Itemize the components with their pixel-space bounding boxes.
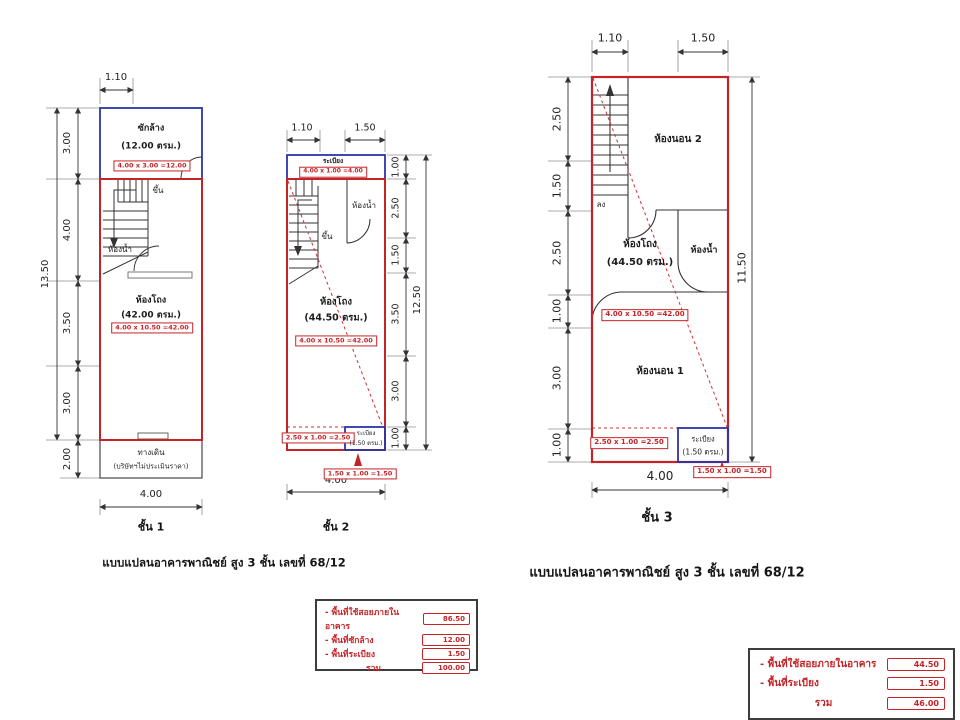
summary-row-label: - พื้นที่ระเบียง [760,676,819,691]
f1-hall-area: (42.00 ตรม.) [121,312,181,321]
f1-dim-left-3: 3.50 [63,312,73,334]
caption-left: แบบแปลนอาคารพาณิชย์ สูง 3 ชั้น เลขที่ 68… [102,557,346,569]
summary-total-value: 100.00 [422,662,470,674]
f3-balcony-label: ระเบียง [691,435,714,443]
f2-balcony-br-label: ระเบียง [357,431,376,437]
f2-hall-calc-chip: 4.00 x 10.50 =42.00 [295,335,377,346]
summary-row-value: 1.50 [887,677,945,690]
f1-dim-left-2: 4.00 [63,219,73,241]
f3-dim-left-1: 2.50 [552,107,563,132]
f2-balcony-top-calc-chip: 4.00 x 1.00 =4.00 [299,167,367,178]
f1-floor-label: ชั้น 1 [138,522,164,533]
floor1-dim-lines [57,90,202,507]
f3-hall-calc2-chip: 2.50 x 1.00 =2.50 [590,437,668,449]
f2-dim-right-1: 1.00 [391,156,401,177]
f1-walkway-note: (บริษัทฯไม่ประเมินราคา) [113,464,188,471]
summary-row-total: รวม 100.00 [325,661,470,675]
f1-hall-calc-chip: 4.00 x 10.50 =42.00 [111,322,193,333]
summary-table-right: - พื้นที่ใช้สอยภายในอาคาร 44.50 - พื้นที… [748,648,955,720]
floor2-stair-arrowhead [294,246,302,256]
f3-balcony-calc-chip: 1.50 x 1.00 =1.50 [693,466,771,478]
f1-bath-label: ห้องน้ำ [108,246,132,254]
f3-bedroom2-label: ห้องนอน 2 [654,135,702,145]
f2-dim-right-5: 3.00 [391,380,401,401]
f3-hall-calc-chip: 4.00 x 10.50 =42.00 [601,309,688,321]
summary-row-value: 1.50 [422,648,470,660]
f2-dim-right-total: 12.50 [413,286,423,315]
f1-hall-label: ห้องโถง [136,297,166,306]
summary-row-label: - พื้นที่ระเบียง [325,647,375,661]
f2-hall-area: (44.50 ตรม.) [304,313,367,323]
f1-walkway-outline [100,440,202,478]
f2-dim-right-3: 1.50 [391,244,401,265]
f3-dim-left-2: 1.50 [552,174,563,199]
f2-dim-top-2: 1.50 [354,123,375,133]
plan-linework [0,0,960,720]
f1-dim-left-5: 2.00 [63,448,73,470]
f3-hall-area: (44.50 ตรม.) [607,258,674,268]
f1-dim-top: 1.10 [105,73,127,83]
summary-row-label: - พื้นที่ใช้สอยภายในอาคาร [325,605,423,633]
f2-floor-label: ชั้น 2 [323,522,349,533]
f2-dim-top-1: 1.10 [291,123,312,133]
floor3-stair-arrowhead [606,84,614,96]
f3-balcony-outline [678,428,728,462]
summary-row-label: - พื้นที่ซักล้าง [325,633,374,647]
summary-row: - พื้นที่ใช้สอยภายในอาคาร 44.50 [760,657,945,672]
f3-dim-top-1: 1.10 [598,33,623,44]
f1-laundry-label: ซักล้าง [138,125,165,134]
f3-hall-label: ห้องโถง [623,240,657,250]
f2-balcony-calc-chip: 1.50 x 1.00 =1.50 [324,468,397,479]
f2-hall-calc2-chip: 2.50 x 1.00 =2.50 [282,432,355,443]
f3-bedroom1-label: ห้องนอน 1 [636,367,684,377]
summary-row: - พื้นที่ระเบียง 1.50 [760,676,945,691]
f3-stair-down-label: ลง [597,201,606,209]
f2-stair-up-label: ขึ้น [322,233,333,241]
floor3-interior [592,77,728,322]
summary-row-label: - พื้นที่ใช้สอยภายในอาคาร [760,657,876,672]
f3-dim-left-5: 3.00 [552,366,563,391]
summary-row-value: 12.00 [422,634,470,646]
summary-total-label: รวม [325,661,422,675]
f3-floor-label: ชั้น 3 [641,512,672,525]
summary-row-value: 86.50 [423,613,470,625]
f2-balcony-br-area: (1.50 ตรม.) [350,441,383,447]
f1-walkway-label: ทางเดิน [137,449,164,457]
f1-laundry-calc-chip: 4.00 x 3.00 =12.00 [113,160,190,171]
f2-hall-label: ห้องโถง [320,297,352,307]
summary-row: - พื้นที่ใช้สอยภายในอาคาร 86.50 [325,605,470,633]
f2-bath-label: ห้องน้ำ [352,202,376,210]
f3-dim-left-4: 1.00 [552,299,563,324]
summary-total-value: 46.00 [887,697,945,710]
summary-row: - พื้นที่ซักล้าง 12.00 [325,633,470,647]
f1-dim-bottom: 4.00 [140,490,162,500]
f3-bath-label: ห้องน้ำ [691,247,718,256]
f1-dim-left-4: 3.00 [63,392,73,414]
floor-plan-sheet: 1.10 13.50 3.00 4.00 3.50 3.00 2.00 4.00… [0,0,960,720]
f1-dim-left-1: 3.00 [63,132,73,154]
f3-dim-right-total: 11.50 [737,252,748,284]
summary-row: - พื้นที่ระเบียง 1.50 [325,647,470,661]
f3-balcony-area: (1.50 ตรม.) [682,448,723,456]
f1-dim-left-total: 13.50 [41,260,51,289]
f2-callout-arrow [354,453,362,466]
f2-dim-right-6: 1.00 [391,427,401,448]
f3-dim-bottom: 4.00 [647,470,674,482]
summary-row-value: 44.50 [887,658,945,671]
summary-total-label: รวม [760,696,887,711]
summary-row-total: รวม 46.00 [760,696,945,711]
f2-dim-right-4: 3.50 [391,303,401,324]
f1-laundry-area: (12.00 ตรม.) [121,143,181,152]
f2-dim-right-2: 2.50 [391,197,401,218]
f2-balcony-top-label: ระเบียง [323,158,343,165]
floor3-dim-lines [568,52,752,490]
caption-right: แบบแปลนอาคารพาณิชย์ สูง 3 ชั้น เลขที่ 68… [529,567,804,580]
f1-stair-up-label: ขึ้น [153,187,164,195]
f1-assessed-outline [100,179,202,440]
f3-dim-top-2: 1.50 [691,33,716,44]
summary-table-left: - พื้นที่ใช้สอยภายในอาคาร 86.50 - พื้นที… [315,599,478,671]
f3-dim-left-6: 1.00 [552,433,563,458]
f3-dim-left-3: 2.50 [552,241,563,266]
